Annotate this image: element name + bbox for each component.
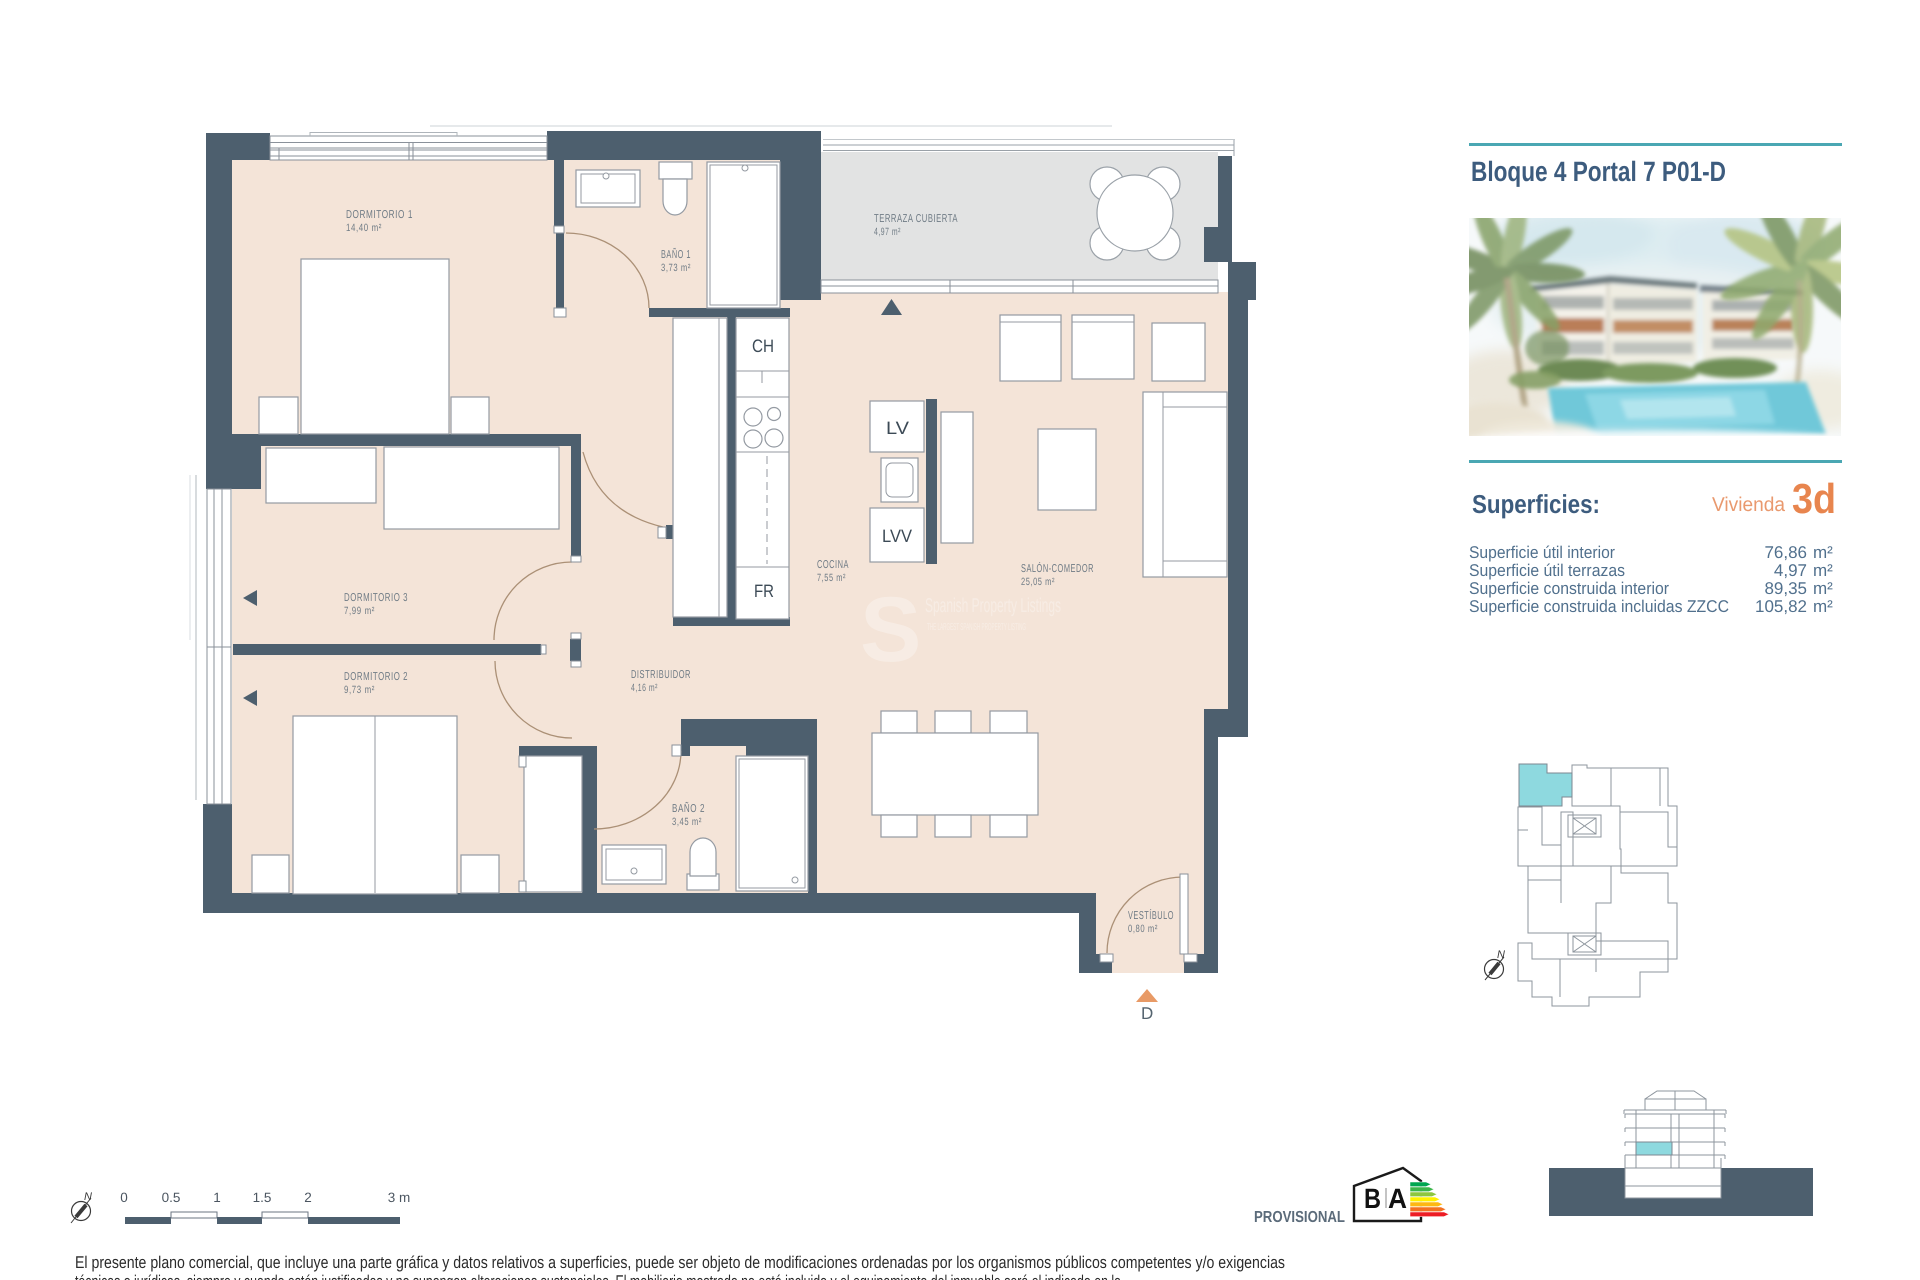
svg-text:VESTÍBULO: VESTÍBULO — [1128, 909, 1174, 922]
svg-text:105,82: 105,82 — [1755, 597, 1807, 616]
svg-text:7,55 m²: 7,55 m² — [817, 572, 846, 584]
svg-text:4,97 m²: 4,97 m² — [874, 226, 901, 238]
svg-text:DORMITORIO 1: DORMITORIO 1 — [346, 209, 413, 221]
svg-text:2: 2 — [304, 1190, 312, 1205]
svg-text:m²: m² — [1813, 543, 1833, 562]
svg-text:Superficie útil interior: Superficie útil interior — [1469, 543, 1615, 562]
svg-text:TERRAZA CUBIERTA: TERRAZA CUBIERTA — [874, 213, 958, 225]
svg-text:Superficie construida interior: Superficie construida interior — [1469, 579, 1669, 598]
svg-text:N: N — [84, 1191, 92, 1203]
svg-text:COCINA: COCINA — [817, 559, 849, 571]
svg-text:m²: m² — [1813, 597, 1833, 616]
svg-text:4,97: 4,97 — [1774, 561, 1807, 580]
svg-text:SALÓN-COMEDOR: SALÓN-COMEDOR — [1021, 562, 1094, 575]
svg-text:DORMITORIO 3: DORMITORIO 3 — [344, 592, 408, 604]
svg-text:9,73 m²: 9,73 m² — [344, 684, 375, 696]
svg-text:m²: m² — [1813, 561, 1833, 580]
svg-text:4,16 m²: 4,16 m² — [631, 682, 658, 694]
svg-text:89,35: 89,35 — [1764, 579, 1807, 598]
svg-text:El presente plano comercial, q: El presente plano comercial, que incluye… — [75, 1253, 1285, 1272]
svg-text:3,45 m²: 3,45 m² — [672, 816, 702, 828]
svg-text:Vivienda: Vivienda — [1712, 494, 1786, 516]
svg-text:FR: FR — [754, 581, 774, 601]
svg-text:0.5: 0.5 — [162, 1190, 181, 1205]
svg-text:7,99 m²: 7,99 m² — [344, 605, 375, 617]
svg-text:DORMITORIO 2: DORMITORIO 2 — [344, 671, 408, 683]
svg-text:BAÑO 2: BAÑO 2 — [672, 801, 705, 815]
svg-text:14,40 m²: 14,40 m² — [346, 222, 382, 234]
svg-text:3d: 3d — [1792, 475, 1836, 522]
svg-text:1.5: 1.5 — [253, 1190, 272, 1205]
svg-text:1: 1 — [213, 1190, 221, 1205]
svg-text:Spanish Property Listings: Spanish Property Listings — [925, 595, 1061, 617]
svg-text:Superficie útil terrazas: Superficie útil terrazas — [1469, 561, 1625, 580]
svg-text:Superficie construida incluida: Superficie construida incluidas ZZCC — [1469, 597, 1729, 616]
svg-text:76,86: 76,86 — [1764, 543, 1807, 562]
svg-text:DISTRIBUIDOR: DISTRIBUIDOR — [631, 669, 691, 681]
svg-text:B: B — [1364, 1183, 1381, 1214]
svg-text:S: S — [860, 579, 921, 681]
svg-text:Superficies:: Superficies: — [1472, 489, 1600, 519]
svg-text:Bloque 4 Portal 7 P01-D: Bloque 4 Portal 7 P01-D — [1471, 156, 1726, 187]
svg-text:técnicas o jurídicas, siempre: técnicas o jurídicas, siempre y cuando e… — [75, 1272, 1121, 1280]
svg-text:N: N — [1497, 949, 1505, 961]
svg-text:BAÑO 1: BAÑO 1 — [661, 247, 691, 261]
svg-text:25,05 m²: 25,05 m² — [1021, 576, 1055, 588]
svg-text:D: D — [1141, 1004, 1153, 1023]
svg-text:0: 0 — [120, 1190, 128, 1205]
svg-text:THE LARGEST SPANISH PROPERTY L: THE LARGEST SPANISH PROPERTY LISTING — [927, 622, 1026, 633]
svg-text:CH: CH — [752, 336, 774, 356]
svg-text:A: A — [1388, 1183, 1407, 1214]
svg-text:m²: m² — [1813, 579, 1833, 598]
svg-text:3 m: 3 m — [388, 1190, 411, 1205]
svg-text:0,80 m²: 0,80 m² — [1128, 923, 1158, 935]
svg-text:3,73 m²: 3,73 m² — [661, 262, 691, 274]
svg-text:LVV: LVV — [882, 526, 912, 546]
svg-text:PROVISIONAL: PROVISIONAL — [1254, 1209, 1345, 1226]
svg-text:LV: LV — [886, 418, 909, 438]
